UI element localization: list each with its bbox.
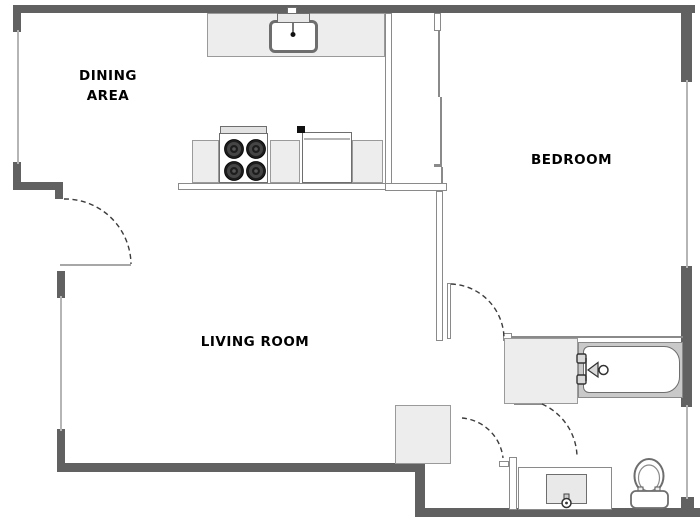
stove	[219, 133, 268, 183]
floor-plan: DINING AREA BEDROOM LIVING ROOM	[0, 0, 700, 525]
kitchen-sink	[269, 20, 318, 53]
entry-door-arc	[64, 199, 131, 264]
window-living-left	[60, 296, 62, 431]
hall-bottom-wall	[385, 183, 447, 191]
window-dining-left	[17, 30, 19, 164]
toilet-hinge	[655, 487, 660, 493]
kitchen-faucet-handle	[287, 7, 297, 14]
bedroom-door-arc	[451, 284, 504, 338]
toilet-seat-inner	[639, 465, 660, 491]
bottom-wall-jog	[415, 463, 425, 510]
kitchen-hall-wall	[385, 13, 392, 185]
top-wall	[13, 5, 695, 13]
dining-label-line2: AREA	[50, 86, 166, 106]
right-wall-top	[681, 5, 692, 82]
toilet-tank	[631, 491, 668, 508]
refrigerator-inner-line	[304, 138, 350, 140]
bedroom-closet-line-c	[441, 167, 443, 183]
bathtub	[583, 346, 680, 393]
window-bedroom-right	[686, 80, 688, 268]
toilet-room-door-jamb	[509, 457, 517, 510]
kitchen-counter-right	[352, 140, 383, 183]
toilet	[631, 459, 668, 508]
left-wall-lower	[57, 429, 65, 465]
window-bathroom-right	[686, 405, 688, 499]
kitchen-faucet-plate	[277, 13, 310, 23]
left-wall-segment	[13, 162, 21, 184]
hall-door-arc	[462, 418, 503, 458]
entry-door-jamb-bottom	[57, 271, 65, 298]
bathroom-vanity-area	[504, 338, 578, 404]
living-room-label: LIVING ROOM	[179, 332, 331, 352]
bedroom-closet-wall-stub	[434, 13, 441, 31]
toilet-bowl	[635, 459, 664, 493]
dining-area-label: DINING AREA	[50, 66, 166, 106]
bathroom-sink	[546, 474, 587, 504]
toilet-hinge	[638, 487, 643, 493]
kitchen-counter-front-edge	[178, 183, 386, 190]
bottom-wall-living	[57, 463, 425, 472]
bedroom-label: BEDROOM	[499, 150, 644, 170]
living-room-closet	[395, 405, 451, 464]
toilet-room-door-arc	[542, 404, 577, 456]
top-left-corner-wall	[13, 5, 21, 32]
kitchen-counter-left	[192, 140, 219, 183]
refrigerator-handle	[297, 126, 305, 133]
kitchen-counter-middle	[270, 140, 300, 183]
bedroom-door-leaf	[447, 283, 451, 339]
entry-door-jamb-top	[55, 188, 63, 199]
bedroom-closet-line-a	[438, 31, 440, 97]
dining-label-line1: DINING	[50, 66, 166, 86]
bedroom-closet-line-b	[440, 97, 442, 165]
toilet-room-jamb-tick	[499, 461, 509, 467]
living-bedroom-wall	[436, 191, 443, 341]
